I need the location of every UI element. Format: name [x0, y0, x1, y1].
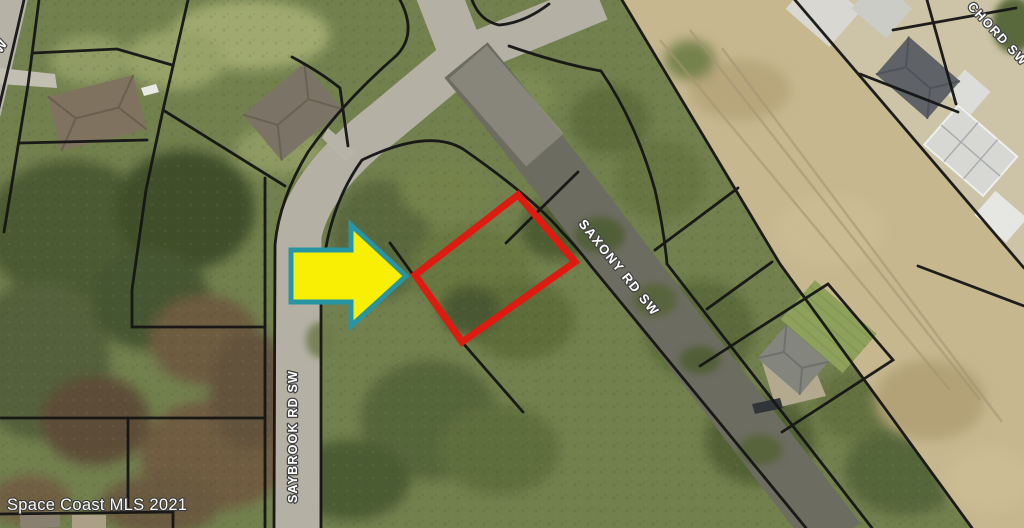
aerial-map: SAXONY RD SW SAYBROOK RD SW CHORD SW W S… — [0, 0, 1024, 528]
house-roof — [72, 515, 106, 528]
street-label-saybrook-rd-sw: SAYBROOK RD SW — [286, 370, 300, 503]
mls-watermark: Space Coast MLS 2021 — [7, 496, 187, 514]
